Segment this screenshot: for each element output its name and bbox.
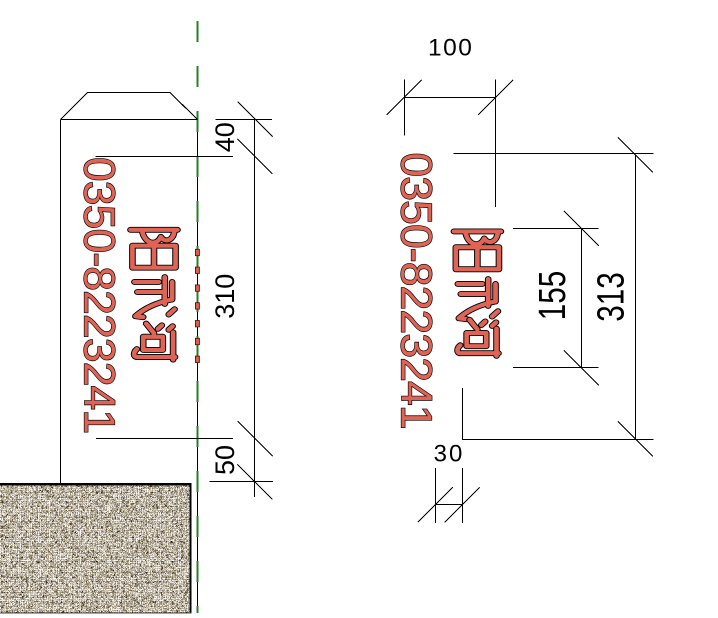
- svg-text:100: 100: [428, 35, 473, 62]
- svg-text:313: 313: [591, 272, 633, 322]
- svg-text:40: 40: [210, 122, 240, 152]
- svg-text:155: 155: [532, 271, 574, 321]
- svg-text:0350-8223241: 0350-8223241: [392, 153, 441, 430]
- svg-text:30: 30: [434, 440, 465, 467]
- svg-text:0350-8223241: 0350-8223241: [75, 157, 124, 434]
- svg-text:310: 310: [210, 274, 240, 319]
- svg-text:50: 50: [210, 445, 240, 475]
